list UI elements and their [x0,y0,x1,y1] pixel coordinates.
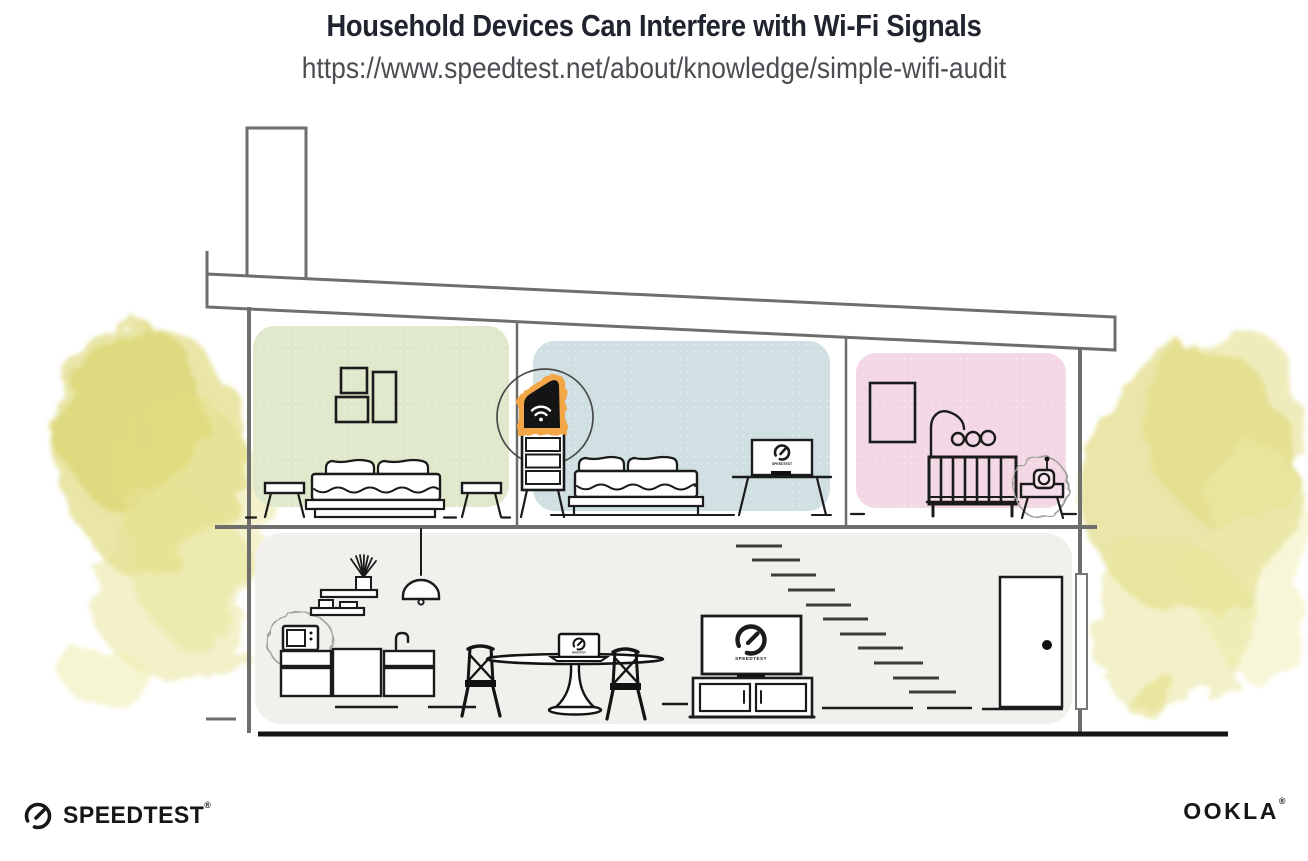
speedtest-screen-label: SPEEDTEST [772,462,793,466]
front-door [1000,577,1062,707]
downspout [1076,574,1087,709]
foliage-right [1085,320,1308,721]
chimney [247,128,306,284]
laptop-icon: SPEEDTEST [551,634,607,661]
living-room-tv: SPEEDTEST [690,616,814,717]
speedtest-screen-label: SPEEDTEST [735,656,767,661]
door-knob [1042,640,1052,650]
double-bed [306,460,444,517]
microwave-icon [283,626,318,650]
speedtest-screen-label: SPEEDTEST [572,652,587,655]
foliage-left [55,320,260,706]
wifi-audit-infographic: Household Devices Can Interfere with Wi-… [0,0,1308,861]
registered-mark: ® [204,800,211,810]
registered-mark: ® [1279,796,1288,806]
house-cross-section-illustration: SPEEDTEST [0,0,1308,861]
speedometer-gauge-icon [22,800,54,832]
tv-console [690,678,814,717]
shelf-drawers [526,438,560,484]
ookla-logo: OOKLA® [1183,798,1288,825]
speedtest-wordmark: SPEEDTEST® [63,802,211,830]
ookla-wordmark: OOKLA [1183,798,1279,824]
speedtest-logo: SPEEDTEST® [22,800,217,832]
